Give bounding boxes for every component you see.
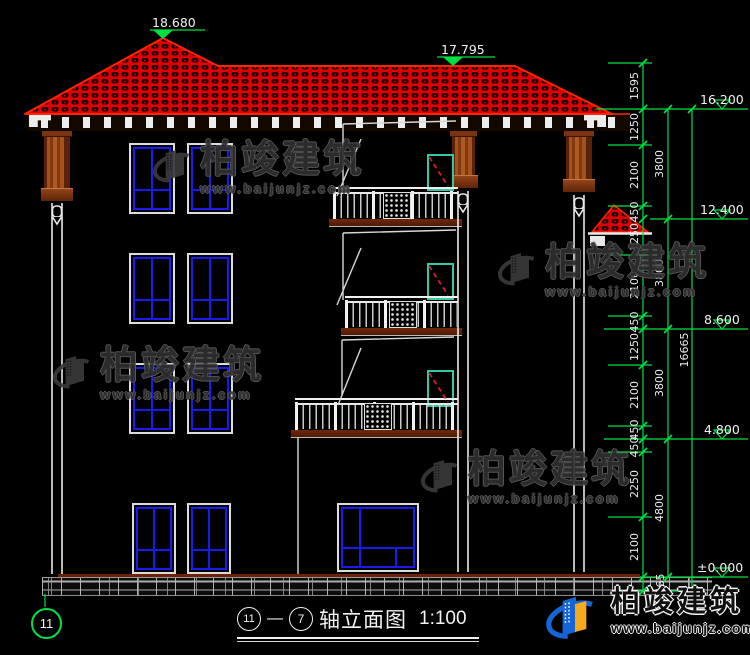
title-axis-a: 11 [237,607,261,631]
door-swing-dashes [429,157,448,402]
drawing-title: 11 — 7 轴立面图 1:100 [237,604,467,634]
svg-text:8.600: 8.600 [704,312,740,327]
baijun-logo-icon [152,140,200,188]
svg-text:12.400: 12.400 [700,202,744,217]
baijun-logo-icon-color [545,586,607,644]
svg-text:3800: 3800 [653,150,666,178]
svg-text:16.200: 16.200 [700,92,744,107]
svg-text:2100: 2100 [628,161,641,189]
title-dash: — [267,610,283,628]
svg-text:4.800: 4.800 [704,422,740,437]
svg-text:±0.000: ±0.000 [697,560,743,575]
pendant-post-middle [458,191,468,572]
title-underline-2 [237,641,479,642]
dimension-chain-segments: 1595 1250 2100 450 1250 2100 450 1250 21… [628,72,691,595]
watermark-url: www.baijunjz.com [200,181,364,196]
axis-bubble-label: 11 [40,616,54,631]
watermark: 柏竣建筑 www.baijunjz.com [52,346,264,402]
baijun-logo-icon [420,450,468,498]
watermark: 柏竣建筑 www.baijunjz.com [420,450,632,506]
title-scale: 1:100 [419,608,467,630]
svg-text:18.680: 18.680 [152,15,196,30]
title-underline [237,637,479,639]
svg-text:1595: 1595 [628,72,641,100]
baijun-logo-icon [52,346,100,394]
svg-text:1250: 1250 [628,333,641,361]
title-text: 轴立面图 [319,604,407,634]
main-hip-roof [25,38,630,114]
baijun-logo-icon [497,243,545,291]
svg-text:16665: 16665 [678,333,691,368]
footer-url: www.baijunjz.com [611,620,750,636]
watermark: 柏竣建筑 www.baijunjz.com [152,140,364,196]
svg-text:450: 450 [628,202,641,223]
footer-brand: 柏竣建筑 [611,586,750,618]
svg-text:1250: 1250 [628,113,641,141]
watermark-brand: 柏竣建筑 [200,140,364,180]
dimension-lines [45,30,748,607]
right-elevation-labels: 16.200 12.400 8.600 4.800 ±0.000 [697,92,744,575]
top-elevation-labels: 18.680 17.795 [152,15,485,57]
title-axis-b: 7 [289,607,313,631]
cad-elevation-drawing: 18.680 17.795 16.200 12.400 8.600 4.800 … [0,0,750,655]
svg-text:2100: 2100 [628,381,641,409]
svg-text:17.795: 17.795 [441,42,485,57]
watermark: 柏竣建筑 www.baijunjz.com [497,243,709,299]
svg-text:3800: 3800 [653,369,666,397]
svg-text:2100: 2100 [628,533,641,561]
svg-text:4800: 4800 [653,494,666,522]
axis-bubble-11: 11 [31,608,62,639]
brand-footer: 柏竣建筑 www.baijunjz.com [545,586,750,644]
svg-text:450: 450 [628,312,641,333]
